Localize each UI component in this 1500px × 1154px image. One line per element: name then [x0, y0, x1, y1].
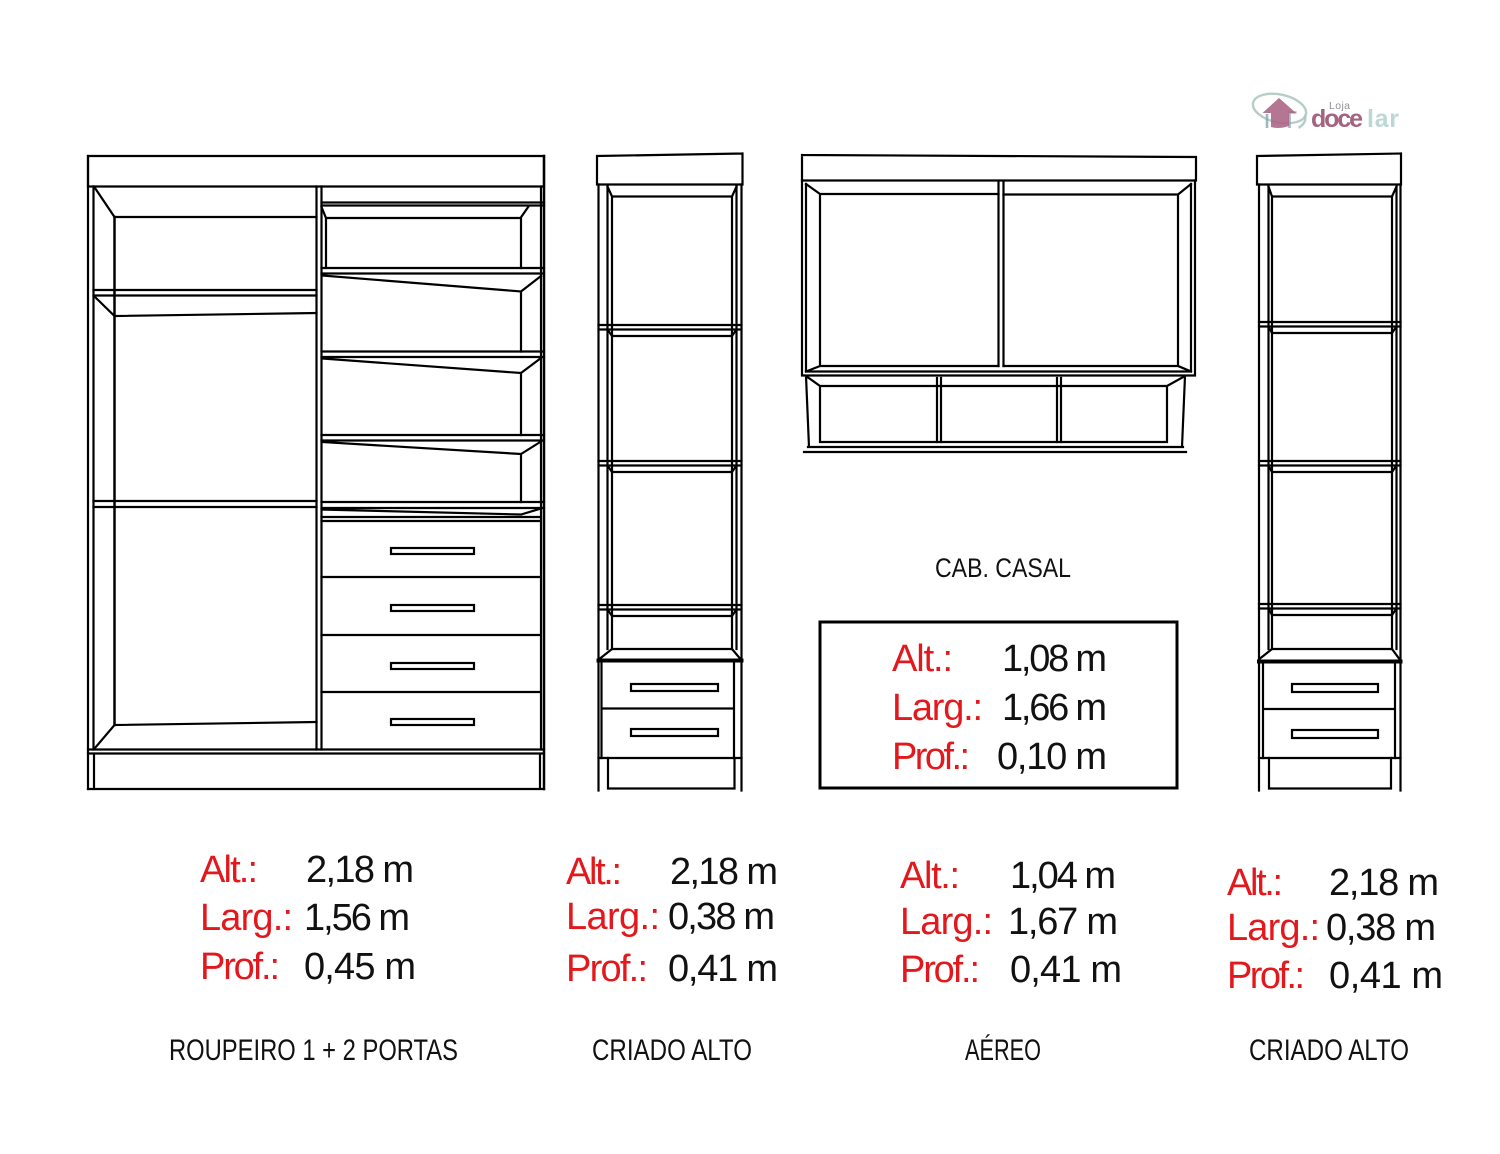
svg-text:1,67 m: 1,67 m [1008, 901, 1118, 943]
svg-text:Alt.:: Alt.: [892, 638, 953, 680]
svg-text:Larg.:: Larg.: [892, 687, 983, 729]
svg-text:CRIADO ALTO: CRIADO ALTO [592, 1034, 752, 1067]
svg-text:1,66 m: 1,66 m [1002, 687, 1107, 729]
svg-text:Prof.:: Prof.: [566, 948, 648, 990]
svg-text:0,41 m: 0,41 m [668, 948, 778, 990]
svg-text:2,18 m: 2,18 m [1329, 862, 1439, 904]
svg-text:1,04 m: 1,04 m [1010, 855, 1116, 897]
svg-text:0,10 m: 0,10 m [997, 736, 1107, 778]
svg-text:ROUPEIRO 1 + 2 PORTAS: ROUPEIRO 1 + 2 PORTAS [169, 1034, 458, 1067]
svg-text:Prof.:: Prof.: [200, 946, 280, 988]
svg-text:0,41 m: 0,41 m [1329, 955, 1443, 997]
svg-text:2,18 m: 2,18 m [670, 851, 778, 893]
svg-text:0,41 m: 0,41 m [1010, 949, 1122, 991]
svg-text:Alt.:: Alt.: [1227, 862, 1283, 904]
svg-text:lar: lar [1367, 105, 1399, 133]
svg-text:Alt.:: Alt.: [566, 851, 622, 893]
svg-text:AÉREO: AÉREO [965, 1034, 1041, 1067]
svg-text:2,18 m: 2,18 m [306, 849, 414, 891]
svg-text:0,38 m: 0,38 m [668, 896, 775, 938]
svg-text:Prof.:: Prof.: [892, 736, 970, 778]
svg-text:0,45 m: 0,45 m [304, 946, 416, 988]
svg-text:Alt.:: Alt.: [200, 849, 258, 891]
svg-text:doce: doce [1311, 105, 1363, 133]
svg-text:Larg.:: Larg.: [1227, 907, 1320, 949]
svg-text:Larg.:: Larg.: [566, 896, 660, 938]
svg-text:Prof.:: Prof.: [900, 949, 980, 991]
svg-text:CRIADO ALTO: CRIADO ALTO [1249, 1034, 1409, 1067]
svg-text:0,38 m: 0,38 m [1326, 907, 1436, 949]
svg-text:Prof.:: Prof.: [1227, 955, 1305, 997]
svg-text:Larg.:: Larg.: [900, 901, 993, 943]
svg-text:1,08 m: 1,08 m [1002, 638, 1107, 680]
svg-text:Larg.:: Larg.: [200, 897, 293, 939]
svg-text:CAB. CASAL: CAB. CASAL [935, 553, 1071, 583]
svg-text:1,56 m: 1,56 m [304, 897, 410, 939]
svg-text:Alt.:: Alt.: [900, 855, 960, 897]
